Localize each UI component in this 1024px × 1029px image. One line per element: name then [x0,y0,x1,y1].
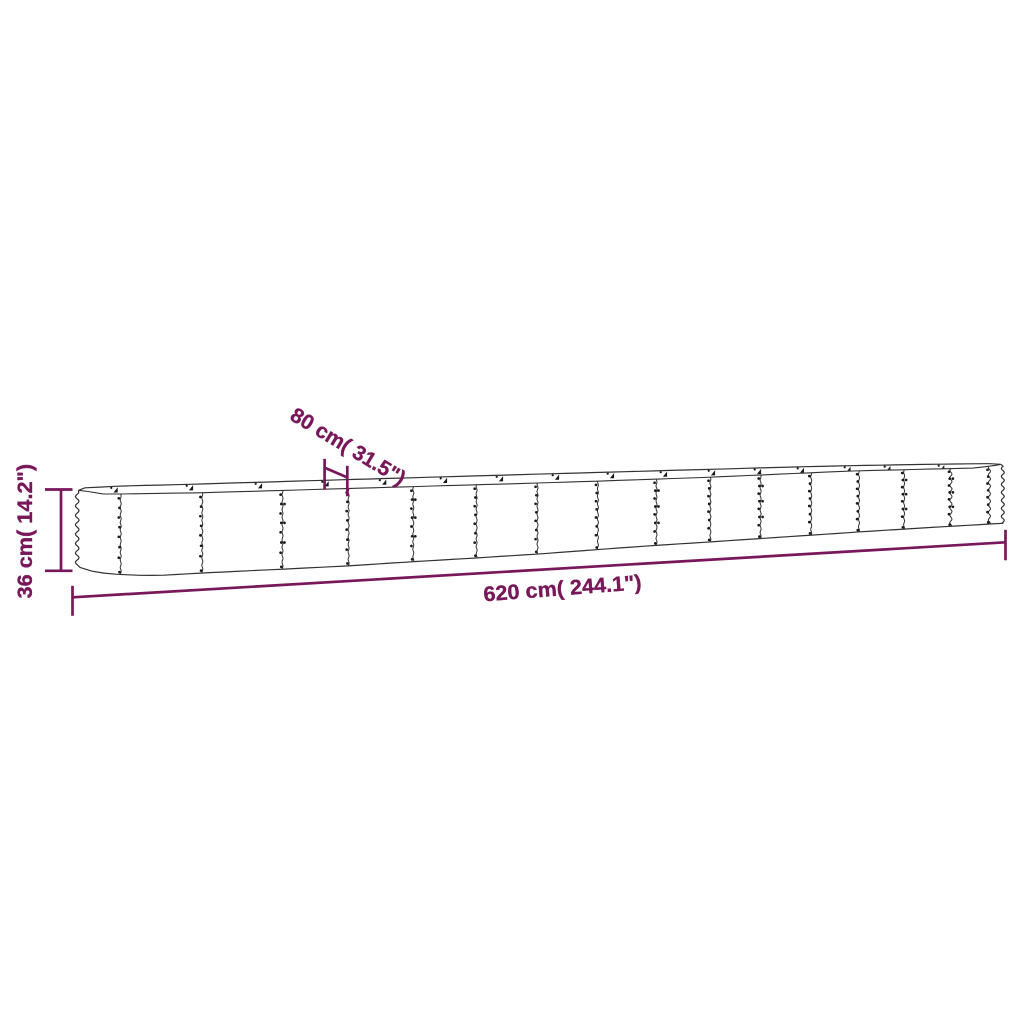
svg-text:620 cm( 244.1"): 620 cm( 244.1") [483,571,643,606]
svg-text:36 cm( 14.2"): 36 cm( 14.2") [14,464,37,599]
